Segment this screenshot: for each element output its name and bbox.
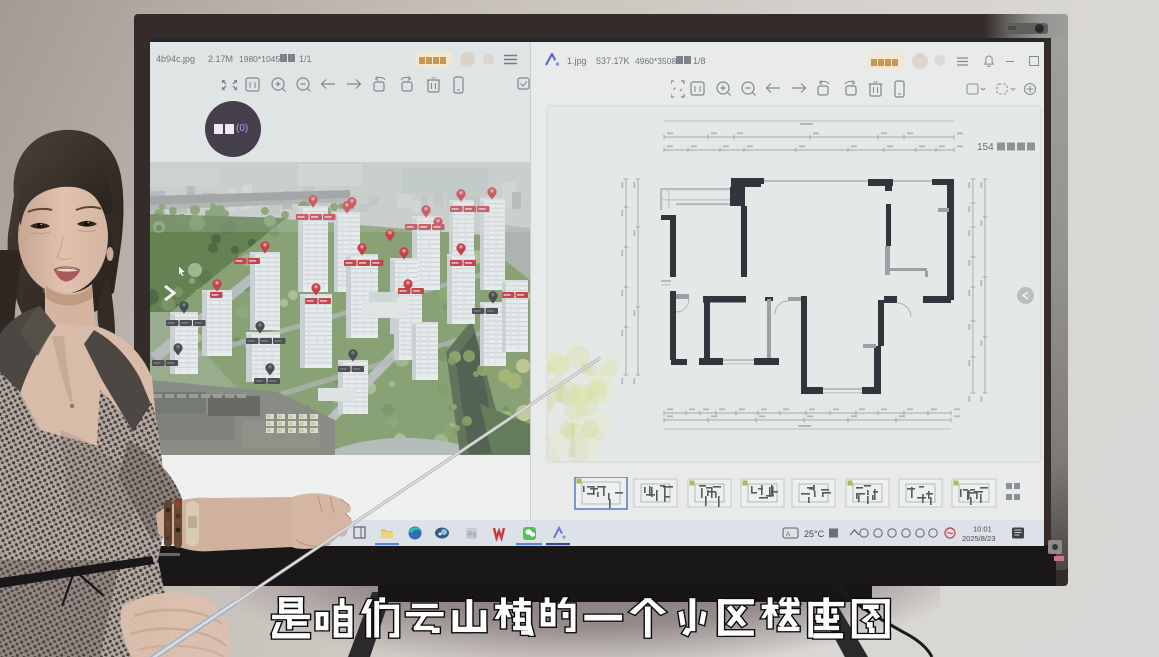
svg-text:10:01: 10:01	[973, 525, 992, 534]
svg-text:25°C: 25°C	[804, 529, 825, 539]
svg-text:154: 154	[977, 142, 994, 153]
svg-text:A: A	[786, 531, 791, 538]
svg-text:2025/8/23: 2025/8/23	[962, 534, 995, 543]
